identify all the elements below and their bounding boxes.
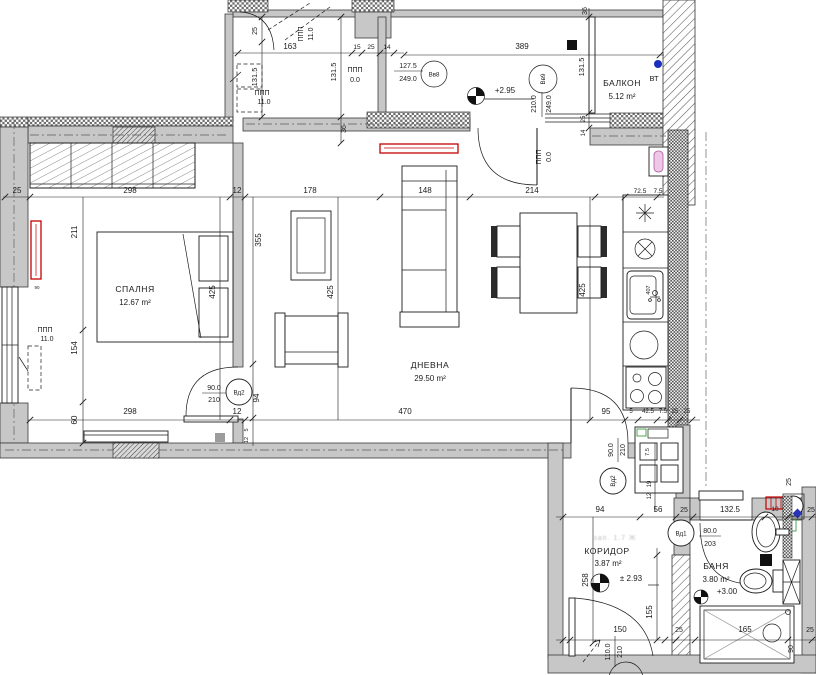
dim: 154: [70, 341, 79, 355]
wall-neighbor: [225, 14, 233, 122]
vd2-height: 210: [208, 397, 220, 404]
dim: 12: [233, 407, 242, 416]
dim: 131.5: [577, 58, 586, 77]
dim: 25: [680, 507, 688, 514]
wardrobe: [30, 143, 195, 188]
dim: 25: [367, 44, 375, 51]
dim: 7.5: [659, 409, 668, 415]
dim: 25: [675, 627, 683, 634]
entrance-height: 210: [617, 646, 624, 658]
dim: 425: [578, 283, 587, 297]
pillow: [199, 236, 228, 281]
dim: 214: [525, 186, 539, 195]
entrance-width: 110.0: [605, 643, 612, 660]
tv-unit: [291, 211, 331, 280]
dim: 10: [771, 506, 779, 513]
chair-back: [491, 226, 497, 257]
dim: 19: [647, 480, 653, 487]
dining-chair: [497, 267, 520, 298]
dim: 25: [13, 186, 22, 195]
dining-chair: [497, 226, 520, 257]
dim: 131.5: [250, 68, 259, 87]
wall-bedroom-east: [233, 143, 243, 367]
dim: 25: [581, 115, 587, 122]
room-area-living: 29.50 m²: [414, 374, 446, 383]
dim: 425: [326, 285, 335, 299]
wall-kitchen-north: [590, 128, 668, 145]
dim: 36: [582, 7, 589, 15]
dim: 211: [70, 225, 79, 238]
door-leaf-bedroom: [184, 416, 238, 422]
column-marker: [567, 40, 577, 50]
window-balcony: [589, 17, 595, 113]
dim: 389: [515, 42, 529, 51]
dim: 25: [807, 507, 815, 514]
balcony-door-track: [545, 114, 610, 122]
room-label-living: ДНЕВНА: [411, 360, 449, 370]
dim: 94: [252, 393, 261, 402]
level-bath: +3.00: [717, 587, 738, 596]
faint-stamp: зап. 1.7 Ж: [594, 535, 637, 542]
level-corridor: ± 2.93: [620, 574, 643, 583]
dining-table: [520, 213, 577, 313]
dim: 12: [244, 437, 250, 443]
dim: 25: [786, 478, 793, 486]
ppp-label: ППП: [298, 26, 305, 41]
shelf: [699, 491, 743, 500]
vt-label: ВТ: [649, 74, 659, 83]
dim: 150: [613, 625, 627, 634]
toilet: [740, 569, 786, 593]
ppp-value: 11.0: [40, 336, 53, 343]
pier-stub: [215, 433, 225, 442]
wall-insulation-block: [228, 0, 268, 12]
sink-code: 407: [646, 285, 652, 294]
tag-vd2: Вд2: [233, 390, 245, 397]
dim: 163: [283, 42, 297, 51]
dim: 298: [123, 407, 137, 416]
shaft-marker: [760, 554, 772, 566]
ppp-label: ППП: [536, 149, 543, 164]
nook-cabinet: 7.5: [635, 427, 683, 493]
vv8-height: 249.0: [399, 76, 417, 83]
ppp-value: 11.0: [308, 27, 315, 40]
dim: 258: [581, 573, 590, 587]
dim: 5: [244, 428, 250, 431]
wall-kitchen-east: [668, 130, 688, 432]
window-bedroom-south: [84, 431, 168, 442]
vd2-height: 210: [620, 444, 627, 456]
room-label-bedroom: СПАЛНЯ: [115, 284, 154, 294]
dim: 25: [252, 27, 259, 35]
ppp-value: 0.0: [546, 152, 553, 162]
door-arc-balcony: [478, 128, 537, 185]
dim: 12: [647, 492, 653, 499]
vd2-width: 90.0: [207, 385, 221, 392]
dim: 12: [233, 186, 242, 195]
ppp-value: 0.0: [350, 77, 360, 84]
wall-corridor-west: [548, 443, 563, 658]
room-label-bath: БАНЯ: [703, 561, 729, 571]
vv9-height: 249.0: [546, 95, 553, 113]
chair-back: [601, 226, 607, 257]
door-arc-living: [571, 388, 628, 443]
vt-point: [654, 60, 662, 68]
room-area-balcony: 5.12 m²: [608, 92, 635, 101]
dim: 14: [383, 44, 391, 51]
dim: 7.5: [653, 188, 662, 195]
dim: 90: [788, 645, 795, 653]
dim: 60: [70, 415, 79, 424]
dim: 25: [806, 627, 814, 634]
wall-insulation-block: [352, 0, 394, 12]
tag-vv9: Вв9: [540, 73, 547, 84]
door-leaf-entrance: [569, 598, 575, 656]
room-area-corridor: 3.87 m²: [594, 559, 621, 568]
sill-hatched: [113, 443, 159, 458]
vv9-width: 210.0: [531, 95, 538, 113]
radiator-size: 90: [34, 285, 40, 290]
chair-back: [601, 267, 607, 298]
room-area-bedroom: 12.67 m²: [119, 298, 151, 307]
room-label-corridor: КОРИДОР: [584, 546, 629, 556]
level-mark-bath: [694, 590, 708, 604]
floor-plan-drawing: 90: [0, 0, 816, 675]
wall-south: [0, 443, 571, 458]
dim: 94: [596, 505, 605, 514]
pipe-riser: [654, 151, 663, 172]
dim: 165: [738, 625, 752, 634]
wall-balcony-sill: [610, 113, 666, 128]
dining-chair: [578, 226, 601, 257]
dim: 148: [418, 186, 432, 195]
shaft-x-box: [783, 560, 800, 604]
dim: 298: [123, 186, 137, 195]
dim: 425: [208, 285, 217, 299]
dim: 131.5: [329, 63, 338, 82]
stove: [626, 367, 666, 408]
furniture: 90: [30, 143, 607, 367]
shaft-strip: [783, 496, 792, 558]
vd1-width: 80.0: [703, 528, 717, 535]
room-label-balcony: БАЛКОН: [603, 78, 641, 88]
tag-vd1: Вд1: [675, 531, 687, 538]
wall-bath-west-hatched: [672, 555, 690, 658]
wall-windowsill: [367, 112, 470, 128]
ppp-label: ППП: [347, 67, 362, 74]
dim: 72.5: [634, 188, 647, 195]
tag-vd2: Вд2: [610, 475, 617, 487]
vd1-height: 203: [704, 541, 716, 548]
wall-entry-split: [378, 17, 386, 117]
vd2-width: 90.0: [608, 443, 615, 457]
dim: 355: [254, 233, 263, 247]
dim: 42.5: [642, 409, 654, 415]
faucet: [776, 529, 789, 535]
room-area-bath: 3.80 m²: [702, 575, 729, 584]
shower: [700, 606, 794, 663]
radiator-bedroom: 90: [31, 221, 41, 290]
dim: 36: [341, 125, 348, 133]
dim: 95: [602, 407, 611, 416]
cabinet-dim: 7.5: [645, 448, 651, 456]
dim: 470: [398, 407, 412, 416]
wall-insulation: [28, 117, 233, 126]
dim: 25: [672, 409, 679, 415]
dashed-opening-bedroom: [28, 346, 41, 390]
radiator-living: [380, 144, 458, 153]
wall-bedroom-east-stub: [233, 419, 243, 443]
ppp-label: ППП: [37, 327, 52, 334]
vv8-width: 127.5: [399, 63, 417, 70]
dim: 14: [581, 129, 587, 136]
dim: 56: [654, 505, 663, 514]
floor-plan-page: 90: [0, 0, 816, 675]
dim: 132.5: [720, 505, 741, 514]
chair-back: [491, 267, 497, 298]
tag-vv8: Вв8: [429, 72, 440, 79]
dim: 178: [303, 186, 317, 195]
dim: 25: [684, 409, 691, 415]
kitchen-sink: 407: [627, 271, 663, 319]
dim: 155: [645, 605, 654, 619]
dim: 15: [353, 44, 361, 51]
ppp-value: 11.0: [257, 99, 270, 106]
armchair: [275, 313, 348, 367]
level-living: +2.95: [495, 86, 516, 95]
